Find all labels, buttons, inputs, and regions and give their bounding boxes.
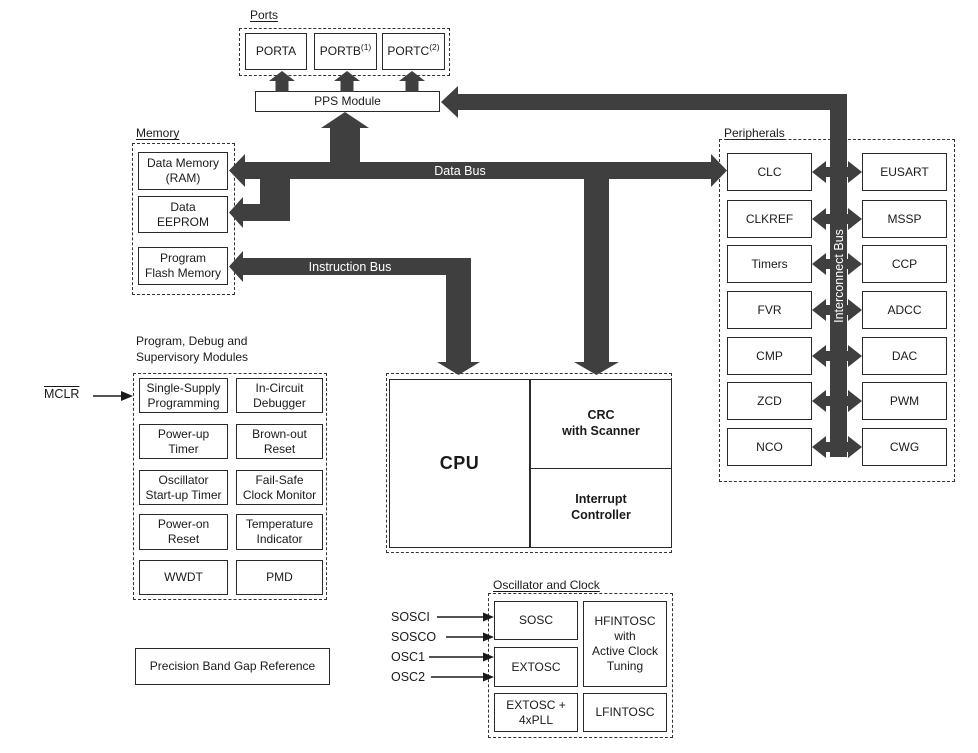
osc1-arrow	[429, 653, 494, 662]
mclr-arrow	[93, 391, 133, 401]
pps-portb-arrow	[334, 71, 360, 92]
eeprom-branch-arrow	[229, 179, 290, 228]
instruction-bus-label: Instruction Bus	[280, 258, 420, 275]
sosco-arrow	[446, 633, 494, 642]
pps-porta-arrow	[269, 71, 295, 92]
osc2-arrow	[431, 673, 494, 682]
pps-riser-arrow	[321, 112, 369, 162]
mcu-block-diagram: Data Bus Instruction Bus Interconnect Bu…	[0, 0, 978, 753]
data-bus-cpu-riser-arrow	[574, 179, 619, 375]
interconnect-pps-link-arrow	[441, 86, 847, 118]
pps-portc-arrow	[399, 71, 425, 92]
sosci-arrow	[437, 613, 494, 622]
data-bus-label: Data Bus	[390, 162, 530, 179]
interconnect-bus-label: Interconnect Bus	[826, 94, 851, 457]
